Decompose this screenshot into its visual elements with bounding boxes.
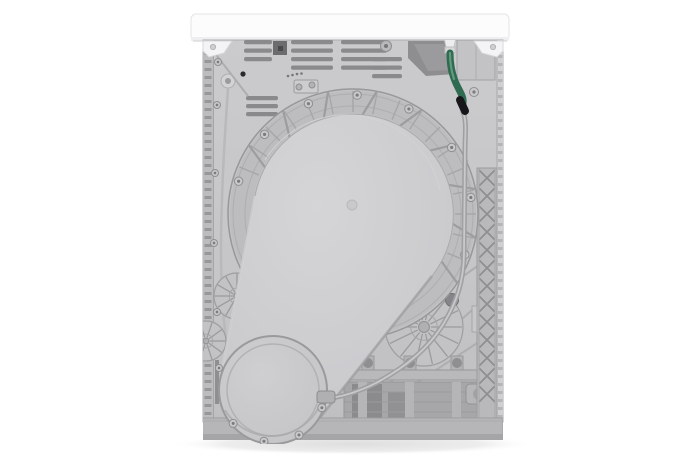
product-photo-canvas [0, 0, 700, 467]
wheel-corner [186, 321, 226, 361]
dryer-rear-view-illustration [0, 0, 700, 467]
top-screw [381, 41, 392, 52]
bracket-screw-right [490, 44, 495, 49]
vent-box-hole [278, 46, 283, 51]
bracket-screw-left [210, 44, 215, 49]
top-panel [191, 14, 509, 41]
hose-tip [460, 100, 465, 111]
blower-housing [219, 336, 327, 445]
punch-hole [240, 71, 245, 76]
